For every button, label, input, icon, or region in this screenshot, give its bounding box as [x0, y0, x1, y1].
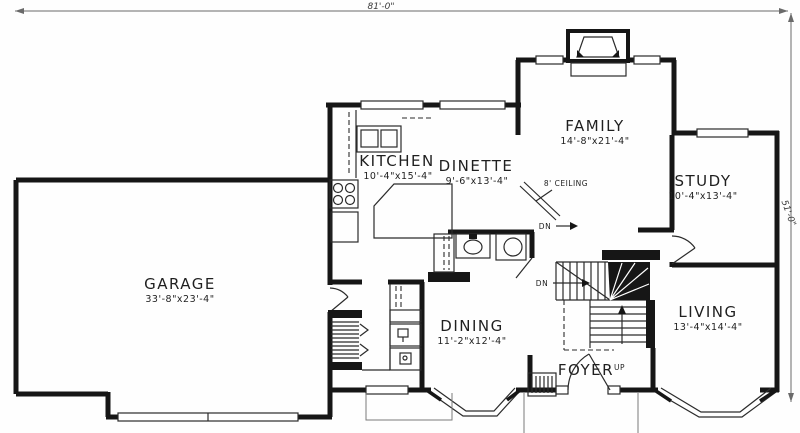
- vanity-sink-icon: [456, 234, 490, 258]
- island-icon: [374, 184, 452, 238]
- dn-note-lower: DN: [536, 279, 548, 288]
- dinette-label: DINETTE: [439, 157, 514, 175]
- door-sidelight-left: [556, 386, 568, 394]
- kitchen-sink-icon: [357, 126, 401, 152]
- dining-bay-window: [428, 388, 519, 416]
- up-note: UP: [614, 363, 625, 372]
- basement-stairs: [328, 310, 368, 370]
- dining-label: DINING: [440, 317, 503, 335]
- refrigerator-icon: [331, 212, 358, 242]
- front-window: [366, 386, 408, 394]
- dryer-icon: [390, 348, 421, 370]
- dining-size: 11'-2"x12'-4": [437, 336, 506, 347]
- kitchen-window: [361, 101, 423, 109]
- overall-depth-dimension: 51'-0": [779, 199, 798, 228]
- living-label: LIVING: [678, 303, 737, 321]
- washer-icon: [390, 324, 421, 346]
- range-icon: [330, 180, 358, 208]
- garage-door: [118, 413, 298, 421]
- garage-size: 33'-8"x23'-4": [145, 294, 214, 305]
- living-bay-window: [656, 388, 776, 417]
- ceiling-note: 8' CEILING: [544, 179, 588, 188]
- living-size: 13'-4"x14'-4": [673, 322, 742, 333]
- dn-note-upper: DN: [539, 222, 551, 231]
- garage-label: GARAGE: [144, 275, 216, 293]
- family-size: 14'-8"x21'-4": [560, 136, 629, 147]
- powder-door: [516, 258, 532, 278]
- powder-room: [434, 234, 532, 278]
- dinette-size: 9'-6"x13'-4": [446, 176, 509, 187]
- main-stairs: [556, 250, 660, 348]
- study-size: 10'-4"x13'-4": [668, 191, 737, 202]
- floor-plan-drawing: 81'-0" 51'-0": [0, 0, 800, 433]
- study-window: [697, 129, 748, 137]
- study-label: STUDY: [674, 172, 731, 190]
- family-window-right: [634, 56, 660, 64]
- overall-width-dimension: 81'-0": [367, 2, 394, 12]
- porch-lines: [366, 393, 638, 433]
- dimension-lines: 81'-0" 51'-0": [15, 2, 797, 402]
- foyer-label: FOYER: [558, 361, 614, 379]
- floor-plan: 81'-0" 51'-0": [0, 0, 800, 433]
- fireplace-icon: [568, 31, 628, 76]
- toilet-icon: [496, 234, 526, 260]
- laundry-area: [362, 284, 421, 370]
- garage-entry-door: [330, 288, 348, 312]
- family-label: FAMILY: [565, 117, 624, 135]
- kitchen-size: 10'-4"x15'-4": [363, 171, 432, 182]
- family-window-left: [536, 56, 563, 64]
- kitchen-label: KITCHEN: [359, 152, 435, 170]
- dinette-window: [440, 101, 505, 109]
- foyer-niche: [528, 373, 556, 396]
- study-door: [672, 236, 695, 264]
